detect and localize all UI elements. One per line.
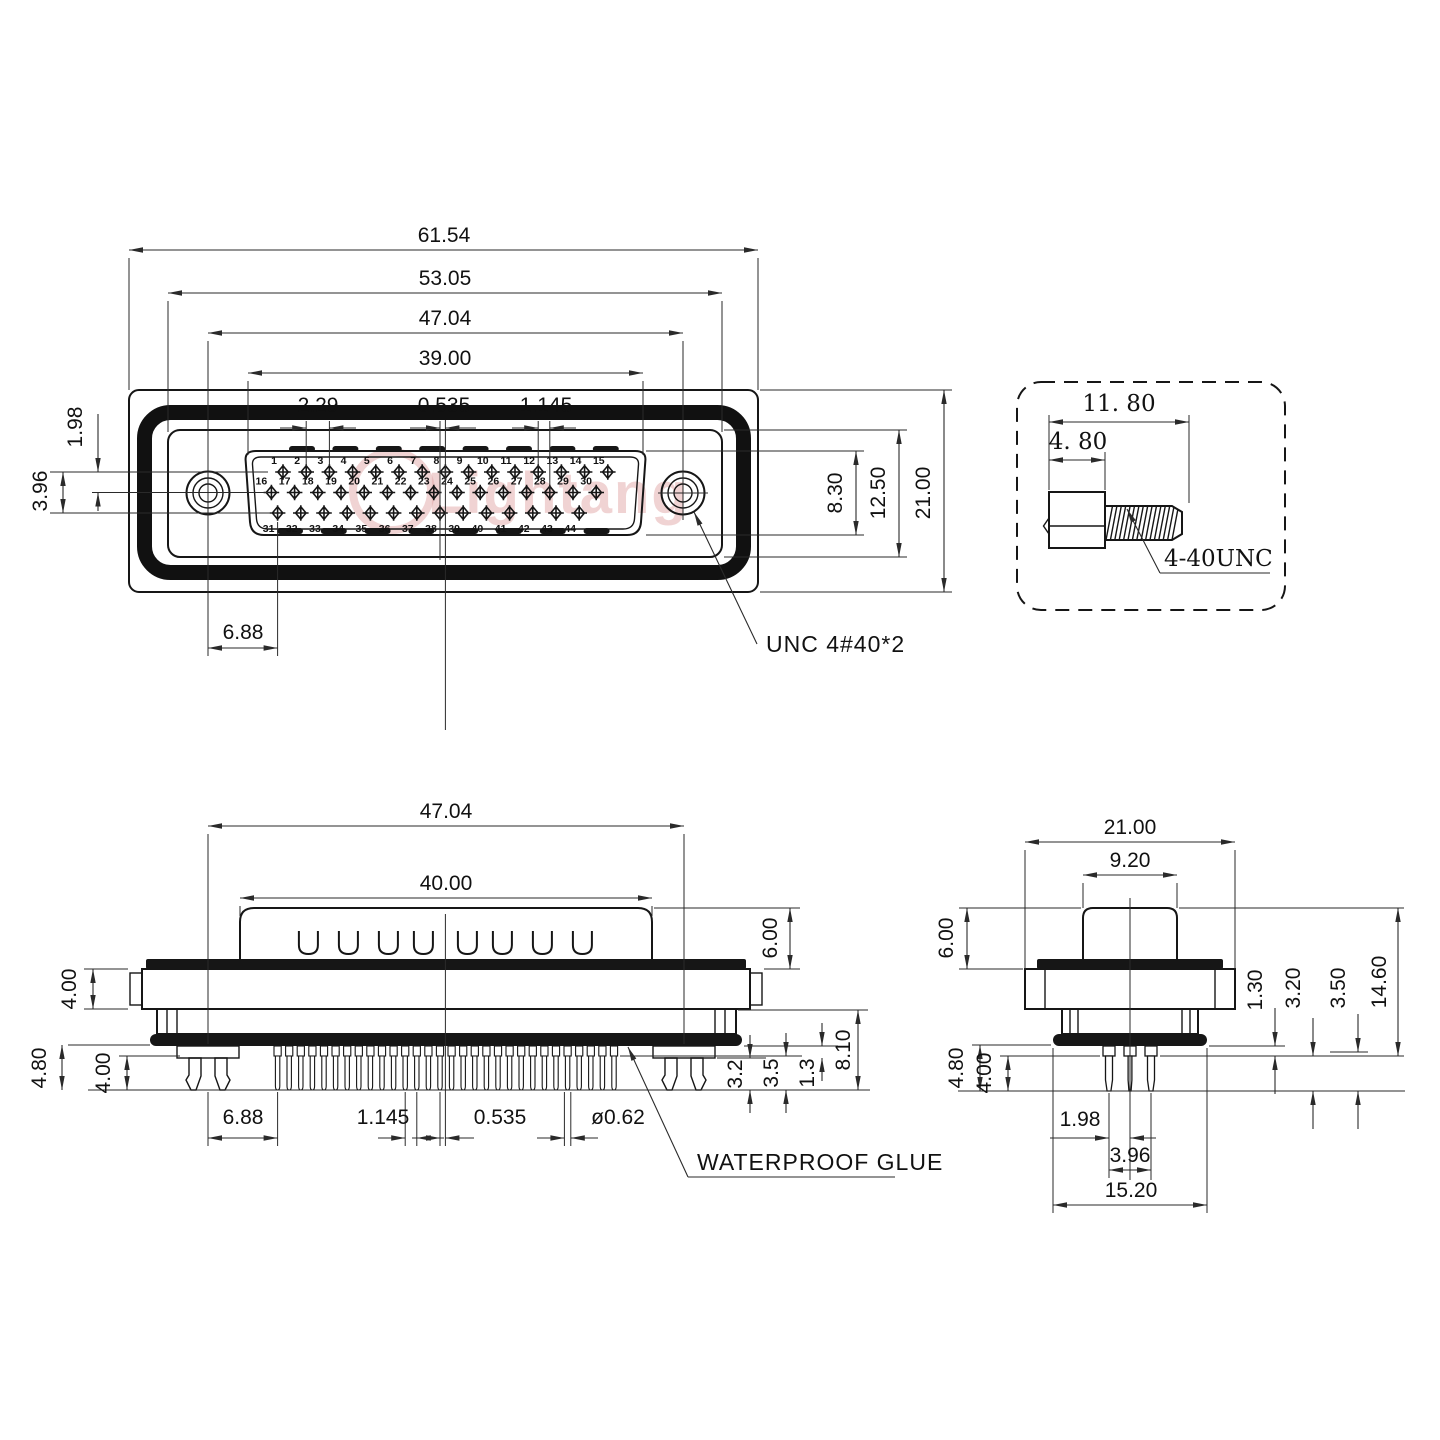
pin-shaft [600, 1056, 604, 1090]
side-dim-leg-b: 4.00 [92, 1053, 180, 1094]
pin-shoulder [344, 1046, 351, 1056]
front-view: Lightang 1234567891011121314151617181920… [29, 224, 952, 730]
pin-number: 25 [464, 476, 476, 488]
pin-number: 38 [425, 523, 437, 535]
svg-text:53.05: 53.05 [419, 267, 472, 290]
pin-number: 9 [457, 455, 463, 467]
pin-shoulder [402, 1046, 409, 1056]
pin-number: 1 [271, 455, 277, 467]
pin-shoulder [448, 1046, 455, 1056]
pin-number: 31 [263, 523, 275, 535]
svg-text:6.00: 6.00 [935, 918, 958, 959]
pin-shaft [589, 1056, 593, 1090]
svg-text:21.00: 21.00 [912, 467, 935, 520]
pin-contact-glyph [293, 505, 309, 521]
side-flange [142, 969, 750, 1009]
pin-shaft [496, 1056, 500, 1090]
pin-shoulder [471, 1046, 478, 1056]
svg-text:4.00: 4.00 [58, 969, 81, 1010]
pin-shaft [565, 1056, 569, 1090]
svg-text:4.00: 4.00 [92, 1053, 115, 1094]
pin-number: 4 [341, 455, 347, 467]
pin-shaft [403, 1056, 407, 1090]
unc-label: UNC 4#40*2 [766, 631, 905, 657]
side-top-gasket [146, 959, 746, 969]
pin-contact-glyph [386, 505, 402, 521]
pin-shaft [612, 1056, 616, 1090]
pin-shoulder [309, 1046, 316, 1056]
pin-shoulder [460, 1046, 467, 1056]
pin-number: 40 [472, 523, 484, 535]
svg-text:3.5: 3.5 [760, 1058, 783, 1087]
pin-shaft [333, 1056, 337, 1090]
svg-text:61.54: 61.54 [418, 224, 471, 247]
pin-number: 2 [294, 455, 300, 467]
body-slot [458, 931, 477, 954]
pin-number: 17 [279, 476, 291, 488]
pin-number: 35 [356, 523, 368, 535]
svg-text:3.96: 3.96 [29, 471, 52, 512]
pin-number: 5 [364, 455, 370, 467]
svg-text:4. 80: 4. 80 [1049, 429, 1108, 455]
pin-number: 22 [395, 476, 407, 488]
pin-shoulder [610, 1046, 617, 1056]
svg-text:15.20: 15.20 [1105, 1179, 1158, 1202]
pin-number: 10 [477, 455, 489, 467]
side-lower-body [157, 1009, 736, 1034]
svg-text:47.04: 47.04 [420, 800, 473, 823]
technical-drawing-page: Lightang 1234567891011121314151617181920… [0, 0, 1440, 1440]
pin-number: 11 [500, 455, 511, 467]
pin-shaft [507, 1056, 511, 1090]
pin-number: 7 [410, 455, 416, 467]
pin-shoulder [506, 1046, 513, 1056]
pin-number: 24 [441, 476, 453, 488]
svg-text:21.00: 21.00 [1104, 816, 1157, 839]
svg-text:1.98: 1.98 [64, 407, 87, 448]
shield-dash-bottom [584, 528, 610, 534]
pin-shaft [554, 1056, 558, 1090]
pin-shaft [299, 1056, 303, 1090]
end-dim-leg-b: 4.00 [973, 1053, 1100, 1094]
side-dim-holes: 47.04 [208, 800, 684, 1044]
side-bracket-left [177, 1046, 239, 1090]
pin-shoulder [332, 1046, 339, 1056]
pin-number: 13 [547, 455, 559, 467]
pin-number: 15 [593, 455, 605, 467]
shield-dash-top [506, 446, 532, 452]
body-slot [573, 931, 592, 954]
pin-contact-glyph [316, 505, 332, 521]
body-slot [533, 931, 552, 954]
body-slot [339, 931, 358, 954]
svg-text:47.04: 47.04 [419, 307, 472, 330]
pin-number: 39 [448, 523, 460, 535]
pin-number: 18 [302, 476, 314, 488]
pin-number: 12 [523, 455, 535, 467]
side-flange-step-right [750, 973, 762, 1005]
pin-shoulder [541, 1046, 548, 1056]
waterproof-glue-label: WATERPROOF GLUE [697, 1149, 943, 1175]
shield-dash-top [549, 446, 575, 452]
svg-text:3.96: 3.96 [1110, 1144, 1151, 1167]
pin-number: 20 [348, 476, 360, 488]
screw-head [1049, 492, 1105, 548]
svg-text:3.50: 3.50 [1327, 968, 1350, 1009]
pin-shoulder [587, 1046, 594, 1056]
svg-text:1.30: 1.30 [1244, 970, 1267, 1011]
dsub-connector-drawing: Lightang 1234567891011121314151617181920… [0, 0, 1440, 1440]
pin-shoulder [367, 1046, 374, 1056]
front-dim-inner-height: 12.50 [724, 430, 907, 557]
pin-number: 36 [379, 523, 391, 535]
pin-number: 44 [564, 523, 576, 535]
shield-dash-top [289, 446, 315, 452]
svg-text:1.145: 1.145 [357, 1106, 410, 1129]
pin-number: 42 [518, 523, 530, 535]
svg-text:4-40UNC: 4-40UNC [1164, 546, 1273, 572]
svg-text:3.20: 3.20 [1282, 968, 1305, 1009]
pin-shoulder [436, 1046, 443, 1056]
svg-text:4.80: 4.80 [28, 1048, 51, 1089]
svg-text:4.00: 4.00 [973, 1053, 996, 1094]
end-view: 21.00 9.20 6.00 4.80 4.00 [935, 816, 1405, 1213]
pin-shaft [531, 1056, 535, 1090]
pin-shoulder [320, 1046, 327, 1056]
body-slot [493, 931, 512, 954]
shield-dash-top [332, 446, 358, 452]
pin-shoulder [529, 1046, 536, 1056]
svg-text:3.2: 3.2 [724, 1059, 747, 1088]
svg-text:ø0.62: ø0.62 [591, 1106, 645, 1129]
side-dim-flange-thickness: 4.00 [58, 969, 128, 1010]
pin-shaft [368, 1056, 372, 1090]
pin-number: 28 [534, 476, 546, 488]
side-waterproof-glue-layer [150, 1034, 742, 1046]
side-view: 47.04 40.00 6.00 4.00 4.80 4.00 [28, 800, 943, 1177]
screw-detail: 11. 80 4. 80 4-40UNC [1017, 382, 1285, 610]
pin-shaft [391, 1056, 395, 1090]
pin-shoulder [552, 1046, 559, 1056]
screw-thread-hatch [1106, 506, 1179, 540]
svg-text:14.60: 14.60 [1368, 956, 1391, 1009]
pin-shoulder [286, 1046, 293, 1056]
pin-number: 8 [433, 455, 439, 467]
pin-number: 32 [286, 523, 298, 535]
svg-text:6.88: 6.88 [223, 1106, 264, 1129]
shield-dash-top [376, 446, 402, 452]
pin-number: 21 [372, 476, 384, 488]
pin-shoulder [1145, 1046, 1157, 1056]
side-dim-leg-a: 4.80 [28, 1045, 150, 1090]
pin-shaft [275, 1056, 279, 1090]
pin-number: 34 [332, 523, 344, 535]
unc-callout: UNC 4#40*2 [694, 512, 905, 657]
front-dim-hole-to-pin: 6.88 [208, 516, 278, 656]
pin-number: 33 [309, 523, 321, 535]
side-bracket-right [653, 1046, 715, 1090]
svg-text:2.29: 2.29 [298, 394, 339, 417]
svg-text:8.10: 8.10 [832, 1030, 855, 1071]
svg-text:9.20: 9.20 [1110, 849, 1151, 872]
side-flange-step-left [130, 973, 142, 1005]
pin-shaft [519, 1056, 523, 1090]
pin-number: 37 [402, 523, 414, 535]
pin-shoulder [483, 1046, 490, 1056]
pin-number: 26 [488, 476, 500, 488]
pin-shoulder [413, 1046, 420, 1056]
svg-text:4.80: 4.80 [945, 1048, 968, 1089]
pin-shoulder [378, 1046, 385, 1056]
pin-shoulder [425, 1046, 432, 1056]
screw-body [1044, 492, 1183, 548]
pin-shaft [380, 1056, 384, 1090]
pin-shaft [449, 1056, 453, 1090]
pin-shaft [415, 1056, 419, 1090]
svg-text:1.145: 1.145 [520, 394, 573, 417]
body-slot [379, 931, 398, 954]
pin-number: 41 [495, 523, 507, 535]
svg-text:12.50: 12.50 [867, 467, 890, 520]
pin-shaft [426, 1056, 430, 1090]
shield-dash-top [463, 446, 489, 452]
screw-dim-head: 4. 80 [1049, 429, 1108, 490]
pin-shaft [310, 1056, 314, 1090]
svg-text:39.00: 39.00 [419, 347, 472, 370]
svg-text:0.535: 0.535 [474, 1106, 527, 1129]
end-dim-leg-a: 4.80 [945, 1045, 1051, 1091]
pin-shaft [461, 1056, 465, 1090]
pin-shaft [1106, 1056, 1113, 1091]
pin-number: 23 [418, 476, 430, 488]
pin-shoulder [518, 1046, 525, 1056]
pin-contact-glyph [270, 505, 286, 521]
side-dim-body: 40.00 [240, 872, 652, 916]
body-slot [299, 931, 318, 954]
pin-shoulder [390, 1046, 397, 1056]
svg-text:1.98: 1.98 [1060, 1108, 1101, 1131]
svg-text:0.535: 0.535 [418, 394, 471, 417]
pin-shoulder [564, 1046, 571, 1056]
pin-shoulder [599, 1046, 606, 1056]
pin-shaft [1148, 1056, 1155, 1091]
svg-text:6.00: 6.00 [759, 918, 782, 959]
svg-text:6.88: 6.88 [223, 621, 264, 644]
svg-text:11. 80: 11. 80 [1082, 391, 1155, 417]
pin-shaft [357, 1056, 361, 1090]
pin-number: 3 [317, 455, 323, 467]
side-dim-right-group: 3.2 3.5 1.3 8.10 [620, 1010, 868, 1113]
pin-number: 19 [325, 476, 337, 488]
svg-text:1.3: 1.3 [796, 1058, 819, 1087]
pin-shaft [484, 1056, 488, 1090]
body-slot [414, 931, 433, 954]
pin-shaft [287, 1056, 291, 1090]
shield-dash-top [419, 446, 445, 452]
svg-text:40.00: 40.00 [420, 872, 473, 895]
pin-number: 14 [570, 455, 582, 467]
pin-number: 30 [580, 476, 592, 488]
pin-shaft [542, 1056, 546, 1090]
pin-number: 16 [256, 476, 268, 488]
pin-number: 43 [541, 523, 553, 535]
side-dim-bottom-group: 6.88 1.145 0.535 ø0.62 [208, 1092, 645, 1146]
pin-shoulder [1103, 1046, 1115, 1056]
pin-number: 27 [511, 476, 523, 488]
pin-shoulder [297, 1046, 304, 1056]
pin-shaft [577, 1056, 581, 1090]
pin-shoulder [494, 1046, 501, 1056]
shield-dash-top [593, 446, 619, 452]
pin-shoulder [355, 1046, 362, 1056]
pin-number: 29 [557, 476, 569, 488]
pin-shaft [345, 1056, 349, 1090]
pin-number: 6 [387, 455, 393, 467]
pin-shaft [473, 1056, 477, 1090]
pin-shaft [322, 1056, 326, 1090]
svg-text:8.30: 8.30 [824, 473, 847, 514]
pin-shoulder [274, 1046, 281, 1056]
pin-shoulder [576, 1046, 583, 1056]
end-dim-right-group: 1.30 3.20 3.50 14.60 [1160, 908, 1404, 1129]
pin-shaft [438, 1056, 442, 1090]
